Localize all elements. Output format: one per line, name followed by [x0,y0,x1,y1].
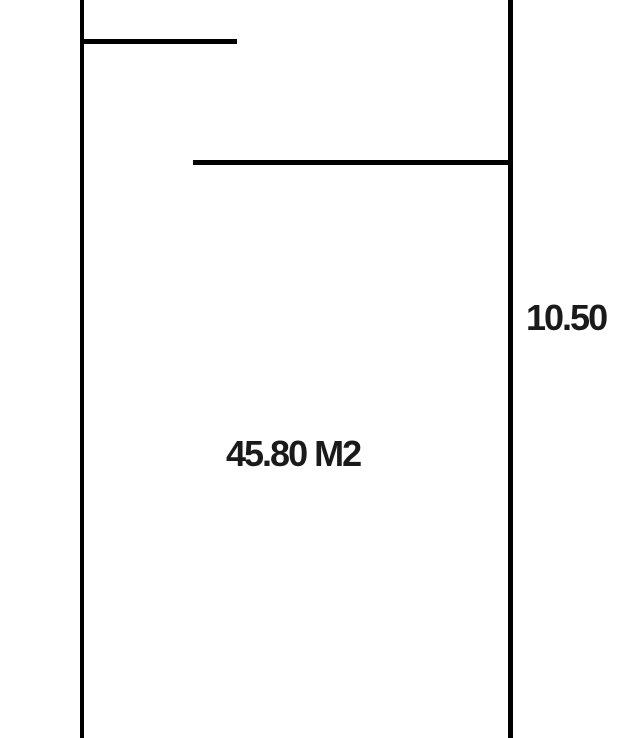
wall-segment-top-left [80,39,237,44]
wall-segment-middle [193,160,513,165]
floor-plan-canvas: 10.50 45.80 M2 [0,0,635,738]
wall-right [508,0,513,738]
dimension-label-right: 10.50 [526,300,606,336]
wall-left [80,0,84,738]
room-area-label: 45.80 M2 [226,436,360,472]
